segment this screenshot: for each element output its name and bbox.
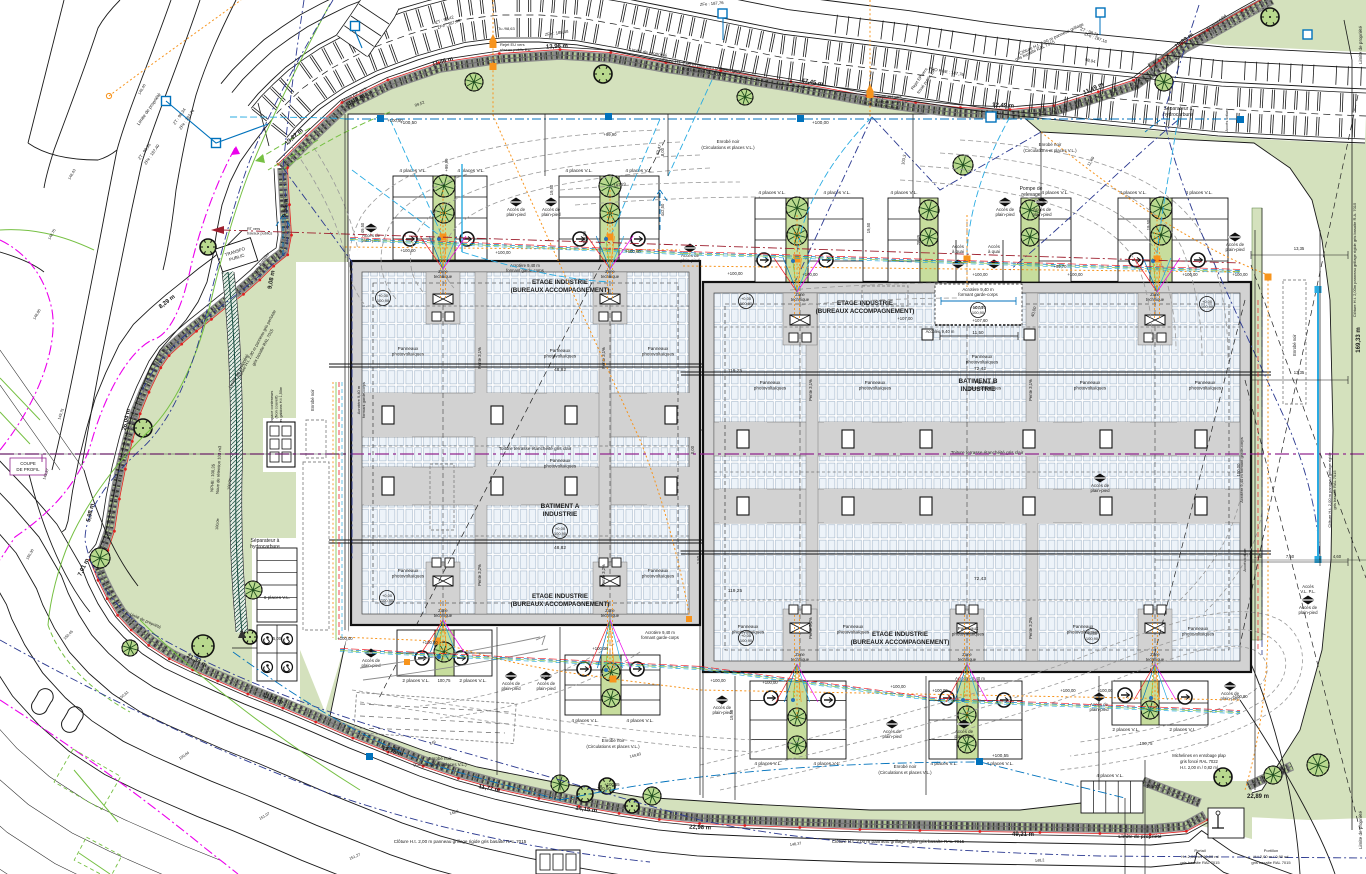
svg-text:Toiture terrasse étanchéité gr: Toiture terrasse étanchéité gris clair [499, 446, 572, 451]
svg-text:4x2,50: 4x2,50 [660, 203, 665, 216]
svg-text:Panneaux: Panneaux [398, 568, 419, 573]
svg-text:+100,00: +100,00 [1182, 272, 1198, 277]
svg-text:4 places V.L.: 4 places V.L. [1096, 773, 1123, 779]
svg-text:gris foncé RAL 7022: gris foncé RAL 7022 [1180, 759, 1218, 764]
svg-text:photovoltaïques: photovoltaïques [1074, 386, 1107, 391]
svg-text:photovoltaïques: photovoltaïques [1182, 632, 1215, 637]
svg-text:Pente 3,2%: Pente 3,2% [1028, 617, 1033, 639]
svg-text:+100,00: +100,00 [802, 272, 818, 277]
svg-text:photovoltaïques: photovoltaïques [966, 360, 999, 365]
svg-text:hydrocarbure: hydrocarbure [1163, 112, 1193, 118]
svg-text:technique: technique [1146, 657, 1165, 662]
svg-text:22,89 m: 22,89 m [1247, 794, 1269, 800]
svg-text:6 places V.L.: 6 places V.L. [264, 595, 290, 600]
svg-text:technique: technique [1146, 297, 1165, 302]
svg-text:+99,90: +99,90 [604, 132, 618, 137]
svg-text:photovoltaïques: photovoltaïques [1067, 630, 1100, 635]
svg-text:11,50: 11,50 [972, 330, 984, 335]
svg-text:Panneaux: Panneaux [1080, 380, 1101, 385]
svg-text:photovoltaïques: photovoltaïques [837, 630, 870, 635]
svg-text:5,00: 5,00 [273, 636, 282, 641]
svg-text:technique: technique [434, 613, 453, 618]
svg-text:travaux publics: travaux publics [247, 232, 272, 236]
svg-text:49,21 m: 49,21 m [1012, 832, 1034, 838]
svg-text:V.L. P.L.: V.L. P.L. [1300, 589, 1315, 594]
svg-text:+100,00: +100,00 [762, 680, 778, 685]
svg-text:+99,70: +99,70 [1054, 264, 1068, 269]
svg-text:Clôture H.t. 2,00 m panneau gr: Clôture H.t. 2,00 m panneau grillage rig… [832, 839, 965, 844]
svg-text:7,50: 7,50 [1286, 554, 1295, 559]
svg-text:Panneaux: Panneaux [843, 624, 864, 629]
svg-text:169,00: 169,00 [1146, 784, 1159, 789]
svg-text:+100,00: +100,00 [337, 636, 353, 641]
svg-text:100,75: 100,75 [1140, 741, 1153, 746]
svg-text:photovoltaïques: photovoltaïques [1189, 386, 1222, 391]
svg-text:H.t.2,00 m / 0,90 ml: H.t.2,00 m / 0,90 ml [1254, 854, 1289, 859]
svg-text:119,25: 119,25 [728, 588, 743, 594]
svg-text:Pente 3,1%: Pente 3,1% [477, 347, 482, 369]
svg-text:Panneaux: Panneaux [975, 380, 996, 385]
svg-text:Panneaux: Panneaux [738, 624, 759, 629]
svg-text:technique: technique [434, 274, 453, 279]
svg-text:photovoltaïques: photovoltaïques [544, 464, 577, 469]
svg-text:72,42: 72,42 [974, 366, 986, 372]
svg-text:+100,00: +100,00 [592, 646, 608, 651]
svg-text:4 places V.L.: 4 places V.L. [1041, 190, 1068, 196]
svg-text:Panneaux: Panneaux [865, 380, 886, 385]
svg-text:plain-pied: plain-pied [1090, 488, 1110, 493]
svg-text:H.t.2,00 m / 10,00 ml: H.t.2,00 m / 10,00 ml [1181, 854, 1218, 859]
svg-text:gris basalte RAL 7015: gris basalte RAL 7015 [1251, 860, 1291, 865]
svg-text:formant garde-corps: formant garde-corps [361, 382, 366, 418]
svg-text:à quai: à quai [988, 249, 1000, 254]
svg-text:plain-pied: plain-pied [995, 212, 1015, 217]
svg-text:(BUREAUX ACCOMPAGNEMENT): (BUREAUX ACCOMPAGNEMENT) [511, 287, 610, 294]
svg-text:Pente 3,2%: Pente 3,2% [601, 564, 606, 586]
svg-text:gris basalte RAL 7015: gris basalte RAL 7015 [1180, 860, 1220, 865]
svg-text:Accolée 9,40 m: Accolée 9,40 m [926, 329, 955, 334]
svg-text:(Circulations et places V.L.): (Circulations et places V.L.) [413, 762, 467, 767]
svg-text:Murs gabions H.t 1,50m: Murs gabions H.t 1,50m [279, 387, 283, 427]
svg-text:+99,99: +99,99 [444, 158, 449, 172]
svg-text:Accès toiture: Accès toiture [1224, 108, 1229, 132]
svg-text:100,90: 100,90 [740, 301, 753, 306]
svg-text:100,75: 100,75 [438, 678, 451, 683]
svg-text:100,90: 100,90 [1086, 636, 1099, 641]
svg-text:Pente 3,1%: Pente 3,1% [601, 347, 606, 369]
svg-text:hydrocarbure: hydrocarbure [250, 544, 280, 550]
svg-text:Limite de propriété: Limite de propriété [1358, 811, 1363, 849]
svg-text:4 places V.L.: 4 places V.L. [626, 718, 653, 724]
svg-text:+100,55: +100,55 [604, 782, 620, 787]
svg-text:100,90: 100,90 [972, 310, 985, 315]
svg-text:RT vers: RT vers [247, 227, 260, 231]
svg-text:100,90: 100,90 [377, 298, 390, 303]
svg-text:2 places V.L.: 2 places V.L. [459, 678, 486, 684]
svg-text:technique: technique [791, 297, 810, 302]
svg-text:ETAGE INDUSTRIE: ETAGE INDUSTRIE [532, 279, 588, 286]
svg-text:plain-pied: plain-pied [541, 212, 561, 217]
svg-text:Panneaux: Panneaux [760, 380, 781, 385]
svg-text:Enrobé noir: Enrobé noir [602, 738, 625, 743]
svg-text:réseau public EU: réseau public EU [500, 47, 531, 52]
svg-text:plain-pied: plain-pied [882, 734, 902, 739]
svg-text:49,50: 49,50 [360, 222, 365, 233]
svg-text:4 places V.L.: 4 places V.L. [813, 761, 840, 767]
svg-text:100,00: 100,00 [1236, 463, 1241, 476]
svg-text:+107,60: +107,60 [972, 318, 988, 323]
svg-text:Pente 3,1%: Pente 3,1% [1028, 379, 1033, 401]
svg-text:Enrobé noir: Enrobé noir [894, 764, 917, 769]
svg-text:+100,00: +100,00 [422, 640, 438, 645]
svg-text:ETAGE INDUSTRIE: ETAGE INDUSTRIE [872, 631, 928, 638]
svg-text:13,96 m: 13,96 m [546, 43, 568, 50]
svg-text:119,25: 119,25 [728, 368, 743, 374]
svg-text:Accès toiture: Accès toiture [1242, 548, 1247, 572]
svg-text:100,90: 100,90 [554, 531, 567, 536]
svg-text:+100,50: +100,50 [387, 118, 403, 123]
svg-text:4 places V.L.: 4 places V.L. [565, 168, 592, 174]
svg-text:Limite de propriété: Limite de propriété [1358, 26, 1363, 64]
svg-text:plain-pied: plain-pied [1225, 247, 1245, 252]
svg-text:+100,00: +100,00 [972, 272, 988, 277]
svg-text:à quai: à quai [952, 249, 964, 254]
svg-text:+100,00: +100,00 [495, 250, 511, 255]
svg-text:Panneaux: Panneaux [972, 354, 993, 359]
svg-text:technique: technique [958, 657, 977, 662]
svg-text:Panneaux: Panneaux [958, 626, 979, 631]
svg-text:photovoltaïques: photovoltaïques [859, 386, 892, 391]
svg-text:COUPE: COUPE [20, 461, 36, 466]
svg-text:Pente 3,1%: Pente 3,1% [808, 379, 813, 401]
svg-text:Portillon: Portillon [1264, 848, 1278, 853]
svg-text:19,50: 19,50 [1146, 219, 1151, 230]
svg-text:48,82: 48,82 [554, 367, 566, 373]
svg-text:169,33 m: 169,33 m [1356, 327, 1362, 352]
svg-text:2 places V.L.: 2 places V.L. [1169, 727, 1196, 733]
svg-text:1,50: 1,50 [696, 555, 701, 564]
svg-text:plain-pied: plain-pied [1298, 610, 1318, 615]
svg-text:148,2: 148,2 [1035, 858, 1045, 863]
svg-text:4 places V.L.: 4 places V.L. [758, 190, 785, 196]
svg-text:Clôture H.t. 2,00m panneau gri: Clôture H.t. 2,00m panneau grillage rigi… [1352, 202, 1357, 317]
svg-text:19,50: 19,50 [866, 222, 871, 233]
svg-text:4 places V.L.: 4 places V.L. [890, 190, 917, 196]
svg-text:relevage: relevage [1021, 192, 1040, 198]
svg-text:+100,00: +100,00 [1097, 688, 1113, 693]
svg-text:4 places V.L.: 4 places V.L. [754, 761, 781, 767]
svg-text:+100,00: +100,00 [625, 249, 641, 254]
svg-text:+100,55: +100,55 [992, 753, 1009, 758]
svg-text:Enrobé noir: Enrobé noir [310, 389, 315, 411]
svg-text:12,49 m: 12,49 m [992, 102, 1014, 109]
svg-text:+100,00: +100,00 [1067, 272, 1083, 277]
svg-text:Portail: Portail [1194, 848, 1205, 853]
svg-text:(Circulations et places V.L.): (Circulations et places V.L.) [586, 744, 640, 749]
svg-text:100,90: 100,90 [381, 598, 394, 603]
svg-text:Panneaux: Panneaux [648, 346, 669, 351]
svg-text:photovoltaïques: photovoltaïques [392, 352, 425, 357]
svg-text:+100,00: +100,00 [812, 120, 829, 125]
svg-text:+100,00: +100,00 [400, 248, 416, 253]
svg-text:Panneaux: Panneaux [550, 348, 571, 353]
svg-text:Clôture H.t. 2,00 m panneau gr: Clôture H.t. 2,00 m panneau grillage rig… [394, 839, 527, 844]
svg-text:Enrobé noir: Enrobé noir [717, 139, 740, 144]
svg-text:(Circulations et places V.L.): (Circulations et places V.L.) [1023, 148, 1077, 153]
svg-text:gris basalte RAL 7015: gris basalte RAL 7015 [1332, 470, 1337, 510]
svg-text:4,60: 4,60 [1333, 554, 1342, 559]
svg-text:photovoltaïques: photovoltaïques [642, 352, 675, 357]
svg-text:plain-pied: plain-pied [536, 686, 556, 691]
svg-text:DE PROFIL: DE PROFIL [16, 467, 40, 472]
svg-text:Panneaux: Panneaux [648, 568, 669, 573]
svg-text:Espace conteneurs: Espace conteneurs [270, 391, 274, 424]
svg-text:100,90: 100,90 [1201, 304, 1214, 309]
svg-text:(BUREAUX ACCOMPAGNEMENT): (BUREAUX ACCOMPAGNEMENT) [851, 639, 950, 646]
svg-text:4 places V.L.: 4 places V.L. [1185, 190, 1212, 196]
svg-text:plain-pied: plain-pied [1032, 212, 1052, 217]
svg-text:+100,00: +100,00 [727, 271, 743, 276]
svg-text:+100,00: +100,00 [710, 678, 726, 683]
svg-text:technique: technique [601, 613, 620, 618]
svg-text:+100,00: +100,00 [1060, 688, 1076, 693]
svg-text:technique: technique [601, 274, 620, 279]
svg-text:13,35: 13,35 [1294, 370, 1305, 375]
svg-text:(Circulations et places V.L.): (Circulations et places V.L.) [878, 770, 932, 775]
svg-text:2 places V.L.: 2 places V.L. [402, 678, 429, 684]
svg-text:Enrobé noir: Enrobé noir [1292, 334, 1297, 356]
svg-text:plain-pied: plain-pied [506, 212, 526, 217]
svg-text:photovoltaïques: photovoltaïques [969, 386, 1002, 391]
svg-text:Pente 3,2%: Pente 3,2% [477, 564, 482, 586]
svg-text:48,82: 48,82 [554, 545, 566, 551]
svg-text:4 places V.L.: 4 places V.L. [986, 761, 1013, 767]
svg-text:plain-pied: plain-pied [680, 258, 700, 263]
svg-text:19,50: 19,50 [549, 184, 554, 195]
svg-text:0,00: 0,00 [690, 445, 695, 454]
svg-text:Enrobé noir: Enrobé noir [429, 756, 452, 761]
svg-text:Enrobé noir: Enrobé noir [1039, 142, 1062, 147]
svg-text:28,45: 28,45 [916, 234, 921, 245]
svg-text:Panneaux: Panneaux [1195, 380, 1216, 385]
svg-text:H.t. 2,00 m / 0,82 ml: H.t. 2,00 m / 0,82 ml [1180, 765, 1218, 770]
svg-text:+100,00: +100,00 [1232, 272, 1248, 277]
svg-text:INDUSTRIE: INDUSTRIE [543, 511, 578, 518]
svg-text:(BUREAUX ACCOMPAGNEMENT): (BUREAUX ACCOMPAGNEMENT) [511, 601, 610, 608]
svg-text:13,35: 13,35 [1294, 246, 1305, 251]
svg-text:plain-pied: plain-pied [954, 734, 974, 739]
svg-text:(Non couvert): (Non couvert) [275, 395, 279, 419]
svg-text:19,50: 19,50 [729, 709, 734, 720]
svg-text:photovoltaïques: photovoltaïques [732, 630, 765, 635]
svg-text:+107,00: +107,00 [897, 316, 913, 321]
svg-text:BATIMENT A: BATIMENT A [541, 503, 580, 510]
svg-text:Tu /98,63: Tu /98,63 [498, 26, 516, 31]
svg-text:Panneaux: Panneaux [398, 346, 419, 351]
svg-text:formant garde-corps: formant garde-corps [641, 635, 679, 640]
svg-text:(BUREAUX ACCOMPAGNEMENT): (BUREAUX ACCOMPAGNEMENT) [816, 308, 915, 315]
svg-text:Panneaux: Panneaux [550, 458, 571, 463]
svg-text:100,90: 100,90 [740, 638, 753, 643]
svg-text:technique: technique [791, 657, 810, 662]
svg-text:+100,00: +100,00 [1232, 694, 1248, 699]
svg-text:photovoltaïques: photovoltaïques [392, 574, 425, 579]
svg-text:22,98 m: 22,98 m [689, 825, 711, 832]
svg-text:photovoltaïques: photovoltaïques [544, 354, 577, 359]
svg-text:Pente 3,2%: Pente 3,2% [808, 617, 813, 639]
svg-text:+100,00: +100,00 [932, 688, 948, 693]
svg-text:ETAGE INDUSTRIE: ETAGE INDUSTRIE [532, 593, 588, 600]
svg-text:(Circulations et places V.L.): (Circulations et places V.L.) [701, 145, 755, 150]
svg-text:photovoltaïques: photovoltaïques [952, 632, 985, 637]
svg-text:+100,00: +100,00 [890, 684, 906, 689]
svg-text:formant garde-corps: formant garde-corps [958, 292, 998, 297]
svg-text:Michelines en enrobage plap: Michelines en enrobage plap [1172, 753, 1226, 758]
svg-text:72,43: 72,43 [974, 576, 986, 582]
svg-text:4 places V.L.: 4 places V.L. [1119, 190, 1146, 196]
svg-text:photovoltaïques: photovoltaïques [754, 386, 787, 391]
svg-text:Panneaux: Panneaux [1073, 624, 1094, 629]
svg-text:photovoltaïques: photovoltaïques [642, 574, 675, 579]
svg-text:Panneaux: Panneaux [1188, 626, 1209, 631]
